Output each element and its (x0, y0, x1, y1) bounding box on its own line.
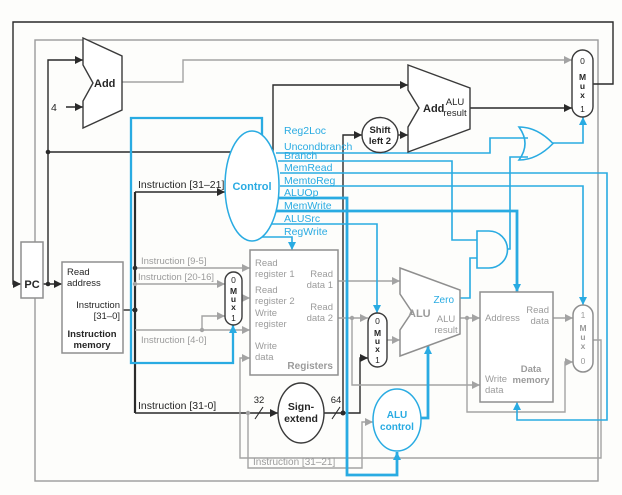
wire-pc4-to-mux (122, 60, 572, 82)
pcsrc-mux-x: x (580, 90, 585, 100)
signal-label-regwrite: RegWrite (284, 226, 328, 238)
alusrc-mux-x: x (375, 344, 380, 354)
add-branch-result-1: ALU (446, 97, 465, 108)
dmem-readdata-2: data (531, 316, 550, 327)
signal-label-aluop: ALUOp (284, 187, 319, 199)
alu-label: ALU (408, 308, 431, 320)
alusrc-mux-0: 0 (375, 316, 380, 326)
alu-result-label-2: result (434, 325, 458, 336)
dmem-address: Address (485, 313, 520, 324)
zero-label: Zero (433, 295, 454, 306)
label-instr-31-21-bottom: Instruction [31–21] (253, 457, 335, 468)
reg-wd-2: data (255, 352, 274, 363)
reg-rr1-2: register 1 (255, 269, 295, 280)
label-instr-31-21-top: Instruction [31–21] (138, 179, 224, 191)
sign-extend-label-1: Sign- (288, 401, 315, 413)
signal-label-branch: Branch (284, 150, 317, 162)
wire-pc-to-add4 (48, 60, 83, 284)
pcsrc-mux-0: 0 (580, 56, 585, 66)
label-instr-31-0: Instruction [31-0] (138, 400, 216, 412)
signal-label-memread: MemRead (284, 162, 333, 174)
sign-extend-label-2: extend (284, 413, 318, 425)
registers-title: Registers (287, 361, 333, 372)
reg-rd2-1: Read (310, 302, 333, 313)
imem-title-2: memory (74, 340, 112, 351)
wire-regwrite (262, 237, 292, 250)
add-branch-result-2: result (443, 108, 467, 119)
imem-title-1: Instruction (67, 329, 116, 340)
alu-control-label-2: control (380, 422, 414, 433)
reg-rr1-1: Read (255, 258, 278, 269)
reg-rr2-2: register 2 (255, 296, 295, 307)
signal-label-reg2loc: Reg2Loc (284, 125, 326, 137)
label-instr-20-16: Instruction [20-16] (138, 272, 214, 283)
dmem-writedata-2: data (485, 385, 504, 396)
imem-read-address-1: Read (67, 267, 90, 278)
datapath-diagram: PC 4 Add Add ALU result Shift left 2 Sig… (0, 0, 622, 495)
dmem-title-2: memory (513, 375, 551, 386)
bus-width-64: 64 (331, 395, 342, 406)
pc-label: PC (24, 279, 39, 291)
wire-or-to-mux (553, 117, 583, 143)
reg2loc-mux-0: 0 (231, 275, 236, 285)
alusrc-mux-1: 1 (375, 355, 380, 365)
reg2loc-mux-x: x (231, 302, 236, 312)
label-instr-4-0: Instruction [4-0] (141, 335, 206, 346)
dmem-readdata-1: Read (526, 305, 549, 316)
memtoreg-mux-x: x (581, 341, 586, 351)
alu-control-label-1: ALU (387, 410, 408, 421)
dmem-title-1: Data (521, 364, 542, 375)
reg-rd1-1: Read (310, 269, 333, 280)
imem-instruction-1: Instruction (76, 300, 120, 311)
imem-instruction-2: [31–0] (94, 311, 120, 322)
or-gate (519, 127, 553, 160)
add-branch-label: Add (423, 103, 444, 115)
const-4-label: 4 (51, 102, 57, 114)
and-gate (477, 231, 508, 268)
control-signal-labels: Reg2Loc Uncondbranch Branch MemRead Memt… (284, 125, 352, 238)
alu-result-label-1: ALU (437, 314, 456, 325)
shift-label-1: Shift (369, 125, 391, 136)
reg-rd2-2: data 2 (307, 313, 333, 324)
control-label: Control (232, 181, 271, 193)
signal-label-alusrc: ALUSrc (284, 213, 320, 225)
reg-wr-1: Write (255, 308, 277, 319)
shift-label-2: left 2 (369, 136, 391, 147)
imem-read-address-2: address (67, 278, 101, 289)
bus-width-32: 32 (254, 395, 265, 406)
reg2loc-mux-1: 1 (231, 313, 236, 323)
wire-alucontrol-to-alu (421, 346, 428, 418)
reg-rr2-1: Read (255, 285, 278, 296)
wire-zero-to-and (460, 258, 477, 298)
reg-rd1-2: data 1 (307, 280, 333, 291)
label-instr-9-5: Instruction [9-5] (141, 256, 206, 267)
memtoreg-mux-1: 1 (581, 310, 586, 320)
signal-label-memwrite: MemWrite (284, 200, 332, 212)
dmem-writedata-1: Write (485, 374, 507, 385)
wire-instr-4-0-mux (135, 316, 225, 330)
add-pc4-label: Add (94, 78, 115, 90)
signal-label-memtoreg: MemtoReg (284, 175, 336, 187)
pcsrc-mux-1: 1 (580, 104, 585, 114)
reg-wd-1: Write (255, 341, 277, 352)
unit-labels: PC 4 Add Add ALU result Shift left 2 Sig… (24, 78, 467, 433)
reg-wr-2: register (255, 319, 287, 330)
memtoreg-mux-0: 0 (581, 356, 586, 366)
datapath-figure: PC 4 Add Add ALU result Shift left 2 Sig… (0, 0, 622, 495)
